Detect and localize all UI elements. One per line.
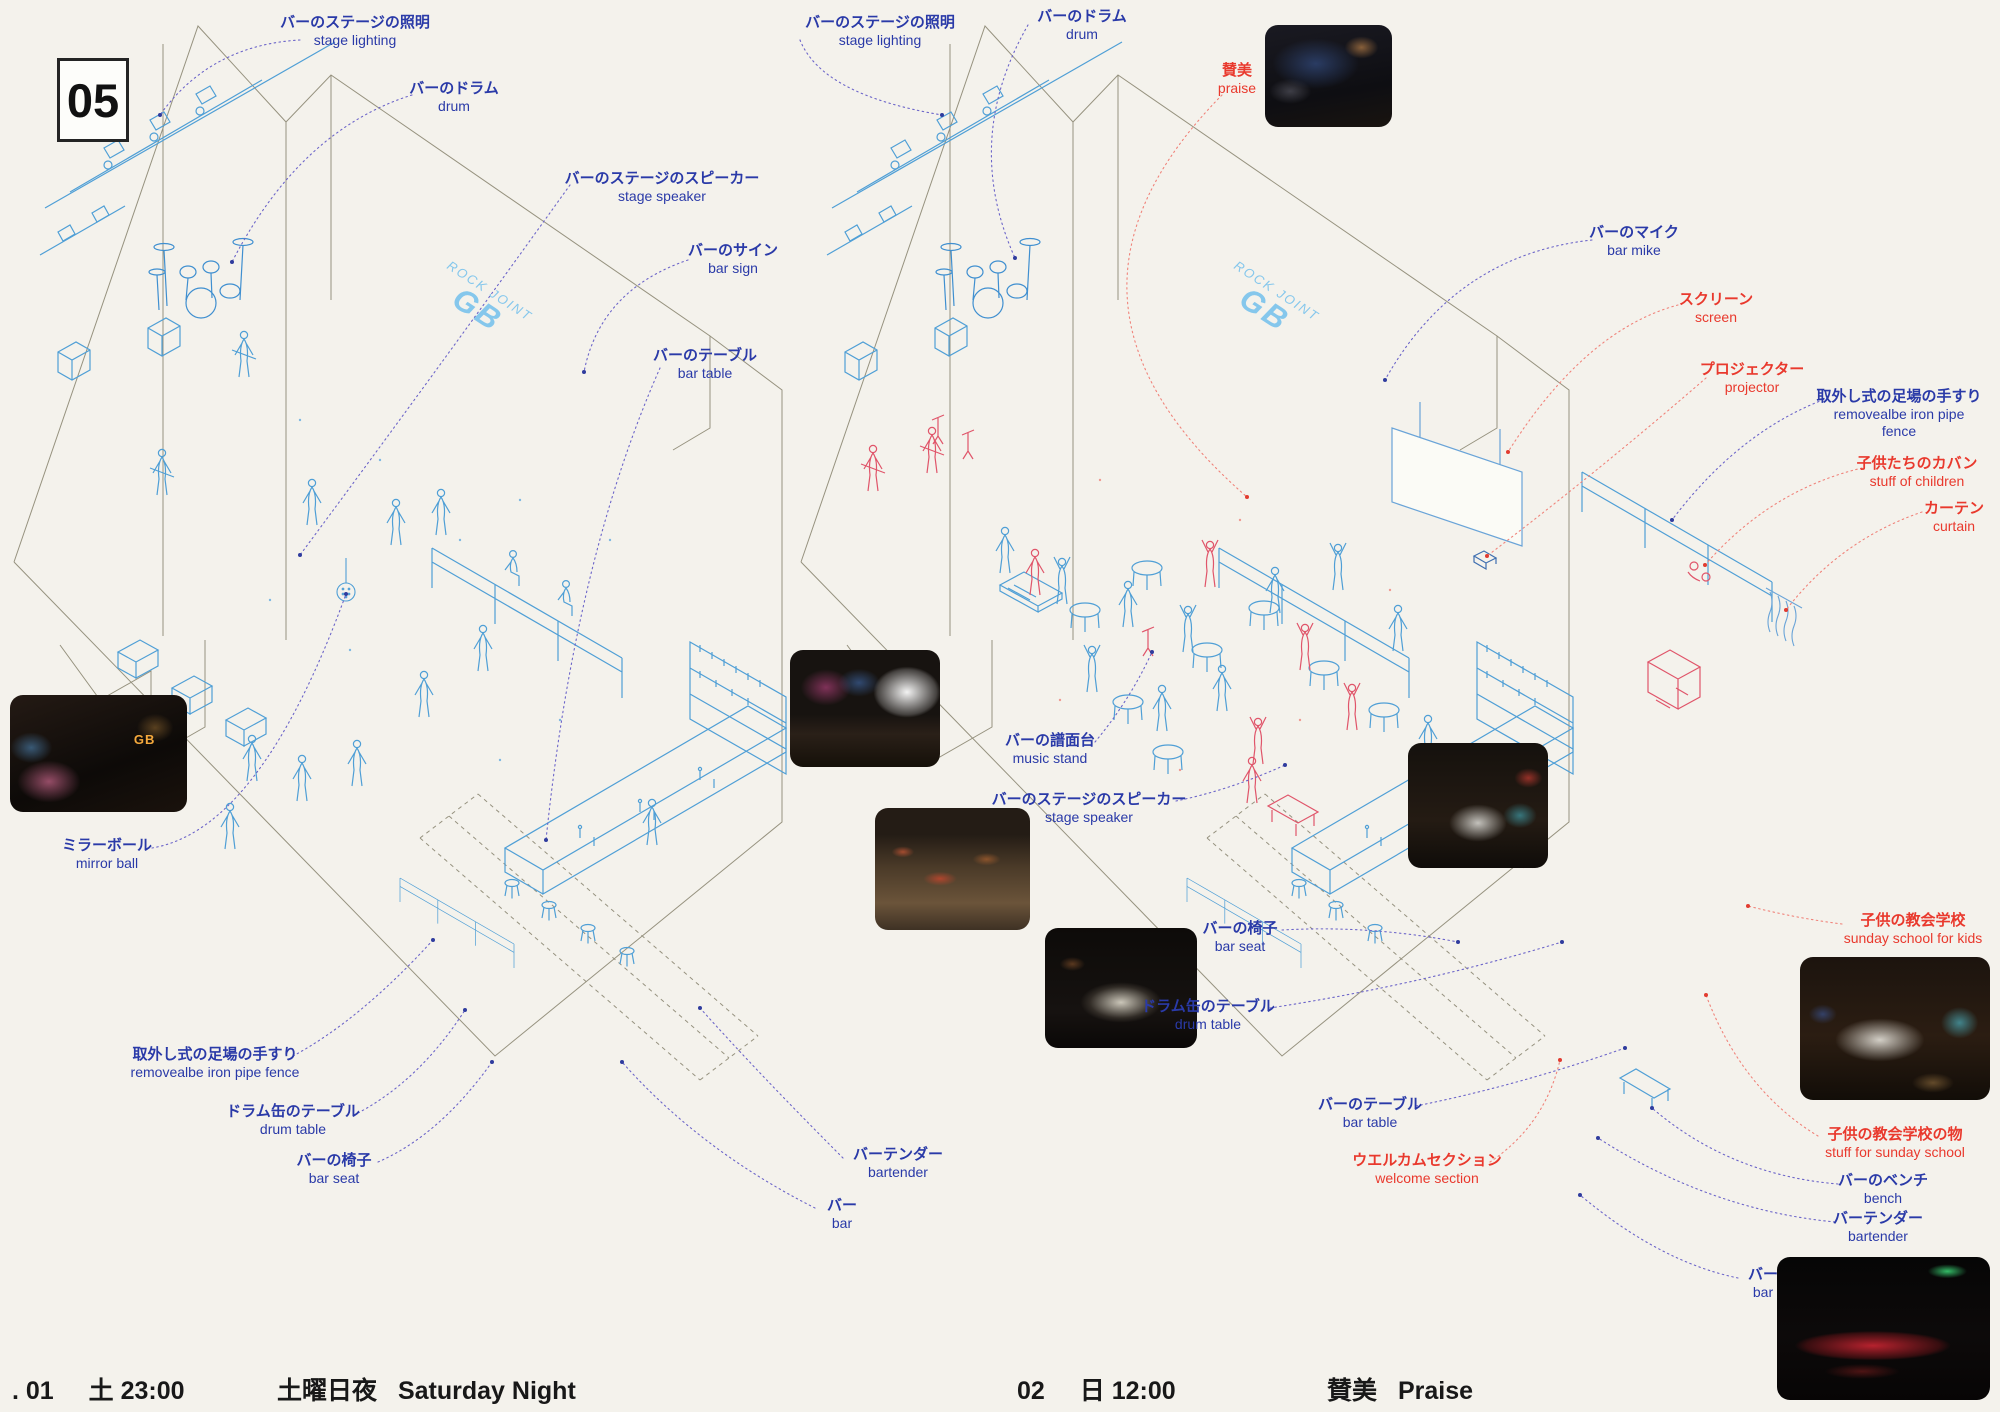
- crowd-left: [150, 331, 661, 849]
- room-right: [801, 26, 1802, 1110]
- photo-drum-tables: [875, 808, 1030, 930]
- scene-title-ja: 土曜日夜: [277, 1371, 377, 1407]
- caption-left-title: 土曜日夜 Saturday Night: [277, 1371, 576, 1407]
- leader-dot-welcome-section: [1558, 1058, 1562, 1062]
- leader-stage-speaker-l: [300, 185, 570, 555]
- leader-dot-bar-seat-r: [1456, 940, 1460, 944]
- leader-screen: [1508, 305, 1678, 452]
- leader-bar-r: [1580, 1195, 1738, 1278]
- leader-dot-bar-l: [620, 1060, 624, 1064]
- leader-dot-drum-r: [1013, 256, 1017, 260]
- leader-bartender-l: [700, 1008, 843, 1158]
- photo-neon-sign: GB: [134, 732, 156, 747]
- screen-drawing: [1392, 402, 1522, 546]
- leader-lines: [152, 25, 1922, 1278]
- leader-bar-table-l: [546, 368, 660, 840]
- caption-right-title: 賛美 Praise: [1327, 1371, 1473, 1407]
- leader-dot-drum-l: [230, 260, 234, 264]
- sunday-school-stuff-drawing: [1648, 562, 1710, 709]
- leader-bar-table-r: [1416, 1048, 1625, 1106]
- leader-bar-seat-r: [1282, 929, 1458, 942]
- leader-dot-fence-l: [431, 938, 435, 942]
- photo-band-top-right: [1265, 25, 1392, 127]
- leader-dot-mirror-ball: [344, 592, 348, 596]
- leader-drum-table-l: [358, 1010, 465, 1113]
- leader-stage-lighting-r: [800, 40, 942, 115]
- leader-dot-fence-r: [1670, 518, 1674, 522]
- leader-bench: [1652, 1108, 1838, 1184]
- leader-drum-r: [991, 25, 1028, 258]
- magazine-spread: ROCK JOINT GB ROCK JOINT GB GB バーのステージの照…: [0, 0, 2000, 1412]
- leader-dot-stage-lighting-l: [158, 113, 162, 117]
- leader-dot-bar-sign-l: [582, 370, 586, 374]
- speckles-right: [1059, 479, 1391, 771]
- leader-bar-sign-l: [584, 260, 688, 372]
- scene-title-en: Praise: [1398, 1377, 1473, 1406]
- leader-dot-praise: [1245, 495, 1249, 499]
- leader-dot-bar-table-r: [1623, 1046, 1627, 1050]
- leader-stage-speaker-r: [1176, 765, 1285, 801]
- leader-dot-bartender-l: [698, 1006, 702, 1010]
- leader-fence-l: [293, 940, 433, 1056]
- caption-right-index: 02 日 12:00: [1017, 1371, 1176, 1407]
- leader-sunday-school: [1748, 906, 1842, 924]
- leader-drum-l: [232, 95, 412, 262]
- photo-sunday-school-stuff: [1800, 957, 1990, 1100]
- leader-dot-drum-table-r: [1560, 940, 1564, 944]
- projector-drawing: [1474, 551, 1496, 569]
- leader-dot-music-stand: [1150, 650, 1154, 654]
- iso-drawing: [0, 0, 2000, 1412]
- leader-curtain: [1786, 512, 1922, 610]
- leader-dot-stage-lighting-r: [940, 113, 944, 117]
- page-number-text: 05: [67, 73, 119, 128]
- leader-dot-bar-table-l: [544, 838, 548, 842]
- leader-stuff-of-children: [1705, 468, 1862, 565]
- photo-welcome-table: [1045, 928, 1197, 1048]
- speckles-left: [269, 419, 611, 761]
- music-stands: [932, 415, 1154, 656]
- photo-sunday-school-kids: [1408, 743, 1548, 868]
- tables-right: [1070, 561, 1455, 787]
- leader-dot-projector: [1485, 554, 1489, 558]
- leader-dot-bar-seat-l: [490, 1060, 494, 1064]
- photo-live-stage-left: GB: [10, 695, 187, 812]
- leader-bartender-r: [1598, 1138, 1835, 1222]
- photo-stage-screen: [790, 650, 940, 767]
- caption-left-index: . 01 土 23:00: [12, 1371, 185, 1407]
- scene-title-ja: 賛美: [1327, 1371, 1377, 1407]
- scene-title-en: Saturday Night: [398, 1377, 576, 1406]
- leader-dot-bar-r: [1578, 1193, 1582, 1197]
- scene-index: . 01: [12, 1377, 54, 1406]
- page-number: 05: [57, 58, 129, 142]
- leader-music-stand: [1095, 652, 1152, 742]
- leader-dot-drum-table-l: [463, 1008, 467, 1012]
- photo-bar-counter: [1777, 1257, 1990, 1400]
- leader-dot-stage-speaker-r: [1283, 763, 1287, 767]
- scene-daytime: 日 12:00: [1080, 1371, 1176, 1407]
- scene-index: 02: [1017, 1377, 1045, 1406]
- leader-bar-l: [622, 1062, 815, 1208]
- leader-welcome-section: [1490, 1060, 1560, 1162]
- leader-dot-curtain: [1784, 608, 1788, 612]
- bench-drawing: [1620, 1069, 1670, 1110]
- leader-bar-seat-l: [378, 1062, 492, 1162]
- leader-dot-stuff-of-children: [1703, 563, 1707, 567]
- leader-drum-table-r: [1270, 942, 1562, 1008]
- leader-dot-stuff-for-sunday-school: [1704, 993, 1708, 997]
- leader-dot-stage-speaker-l: [298, 553, 302, 557]
- leader-fence-r: [1672, 398, 1828, 520]
- room-left: [14, 26, 786, 1080]
- scene-daytime: 土 23:00: [89, 1371, 185, 1407]
- leader-dot-bar-mike: [1383, 378, 1387, 382]
- leader-dot-bench: [1650, 1106, 1654, 1110]
- welcome-table-drawing: [1268, 795, 1318, 836]
- leader-stage-lighting-l: [160, 40, 300, 115]
- leader-dot-screen: [1506, 450, 1510, 454]
- leader-dot-bartender-r: [1596, 1136, 1600, 1140]
- leader-bar-mike: [1385, 240, 1592, 380]
- leader-dot-sunday-school: [1746, 904, 1750, 908]
